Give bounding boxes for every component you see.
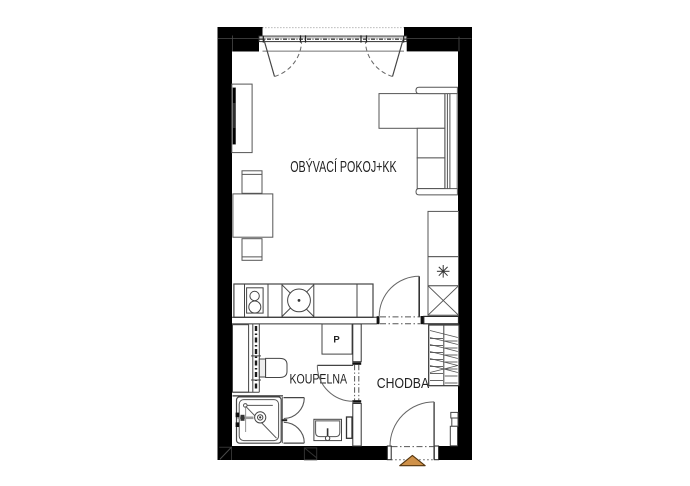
svg-text:OBÝVACÍ POKOJ+KK: OBÝVACÍ POKOJ+KK xyxy=(290,157,397,176)
svg-text:CHODBA: CHODBA xyxy=(377,375,430,392)
svg-text:P: P xyxy=(333,335,340,346)
